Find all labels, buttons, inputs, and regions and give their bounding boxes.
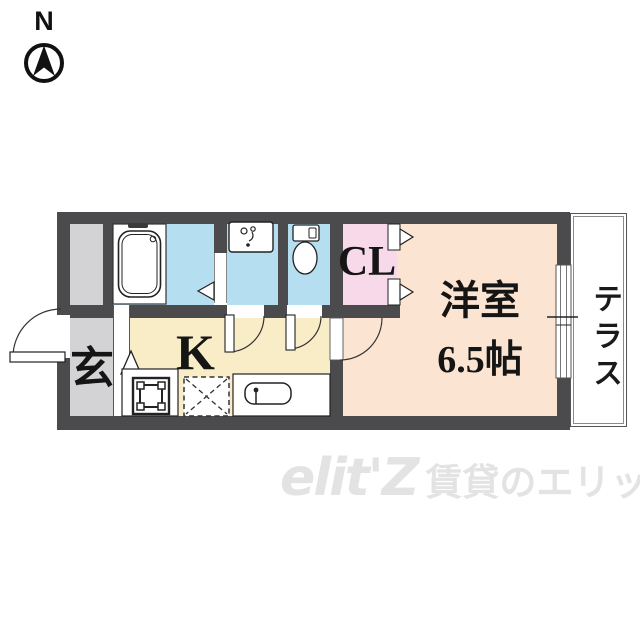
closet-label: CL	[335, 240, 399, 284]
watermark-text: 賃貸のエリッツ	[425, 452, 640, 506]
bathroom-door-gap	[214, 253, 227, 303]
terrace-area: テラス	[570, 213, 627, 427]
watermark: elit'Z 賃貸のエリッツ	[280, 448, 640, 508]
wall-right-upper	[557, 212, 570, 265]
kitchen-label: K	[158, 326, 233, 379]
western-room-label: 洋室 6.5帖	[405, 268, 555, 383]
terrace-label: テラス	[571, 258, 626, 418]
room-toilet	[288, 224, 330, 305]
wall-bottom	[57, 416, 570, 430]
western-room-name: 洋室	[405, 268, 555, 326]
western-room-size: 6.5帖	[405, 328, 555, 383]
wall-left-upper	[57, 212, 70, 315]
wall-top	[57, 212, 570, 224]
room-washroom	[227, 224, 278, 305]
wall-mid-3	[264, 305, 287, 318]
wall-washroom-toilet	[278, 224, 288, 305]
wall-right-lower	[557, 378, 570, 430]
room-bathroom	[113, 224, 214, 305]
wall-mid-2	[130, 305, 227, 318]
compass-north-label: N	[28, 6, 60, 37]
entrance-label: 玄	[68, 346, 116, 392]
wall-bath-left	[103, 224, 113, 305]
floorplan-image: N テラス	[0, 0, 640, 640]
watermark-logo: elit'Z	[280, 448, 417, 508]
room-corridor-area	[70, 224, 103, 305]
wall-bath-washroom	[214, 224, 227, 253]
wall-kitchen-western	[330, 360, 343, 430]
